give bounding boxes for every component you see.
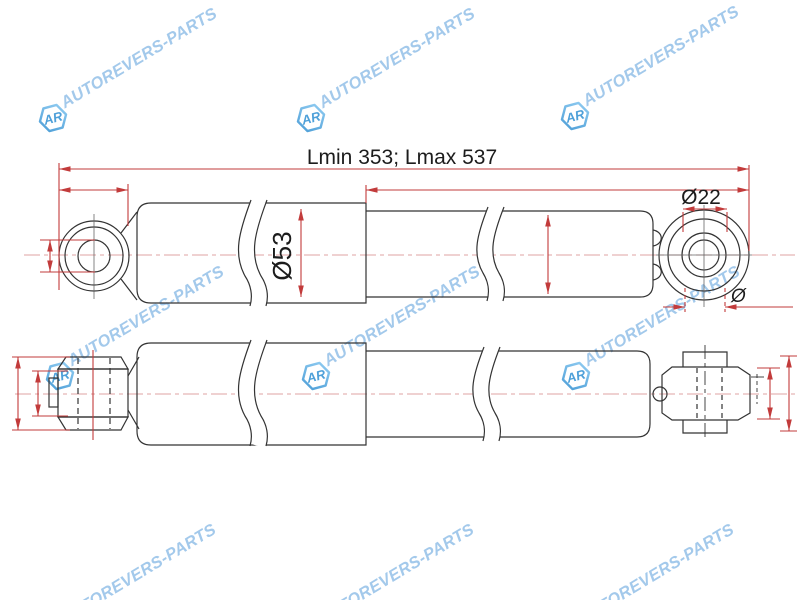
bottom-view-dimensions: [12, 350, 797, 440]
watermark: [295, 4, 478, 132]
watermark: [560, 262, 743, 390]
overall-length-label: Lmin 353; Lmax 537: [307, 146, 497, 169]
break-line: [238, 340, 267, 446]
shock-absorber-bottom-view: [15, 340, 795, 446]
shock-absorber-top-view: [24, 200, 795, 307]
eye-inner-diameter-label: Ø22: [681, 186, 721, 209]
left-eye-ring: [59, 212, 137, 300]
break-line: [238, 200, 267, 306]
partial-diameter-label: Ø: [730, 286, 747, 307]
watermark: [559, 2, 742, 130]
watermark: [36, 520, 219, 600]
top-view-dimensions: [40, 163, 793, 312]
drawing-page: AR AUTOREVERS-PARTS: [0, 0, 800, 600]
body-diameter-label: Ø53: [267, 231, 297, 280]
watermark: [44, 262, 227, 390]
watermark: [37, 4, 220, 132]
body-tube-small: [366, 211, 653, 297]
technical-drawing: AR AUTOREVERS-PARTS: [0, 0, 800, 600]
dimension-overall-length: [59, 163, 749, 290]
watermark: [554, 520, 737, 600]
break-line: [477, 207, 505, 301]
watermark: [294, 520, 477, 600]
right-bushing: [653, 345, 764, 441]
dimension-left-eye-width: [59, 184, 128, 226]
watermark: [300, 262, 483, 390]
